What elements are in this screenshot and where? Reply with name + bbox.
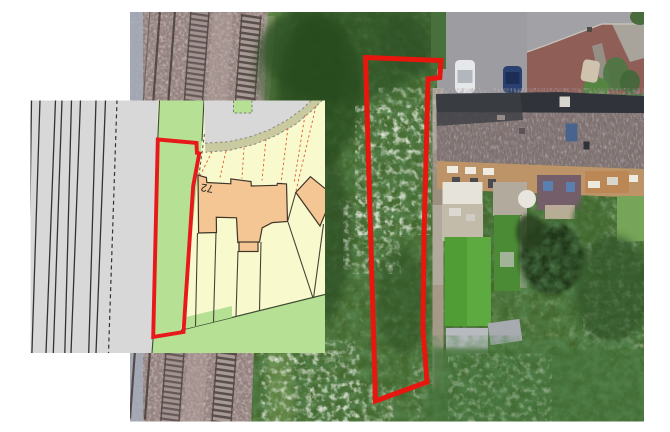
svg-text:72: 72 bbox=[200, 181, 214, 195]
